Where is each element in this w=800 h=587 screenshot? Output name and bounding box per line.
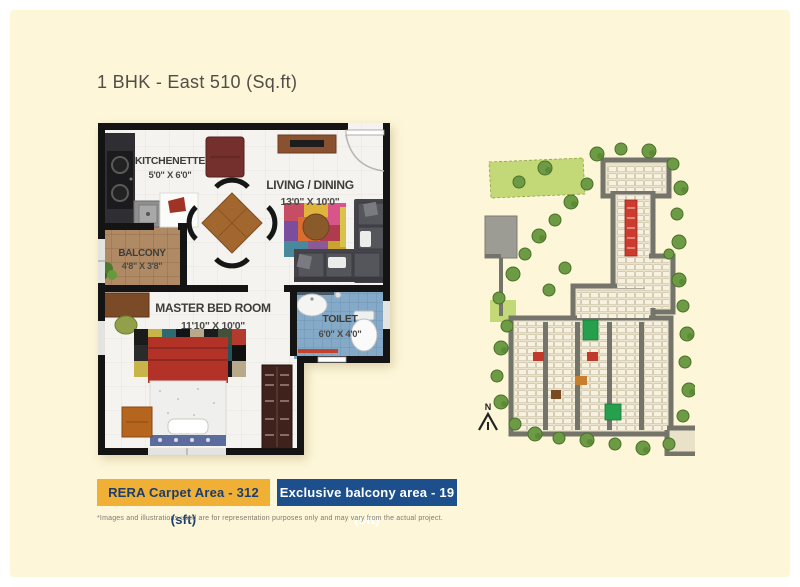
room-label-master-bedroom: MASTER BED ROOM xyxy=(155,301,271,315)
disclaimer-footnote: *Images and illustrations used are for r… xyxy=(97,515,443,522)
room-label-living-dining: LIVING / DINING xyxy=(266,178,354,192)
bath-mat xyxy=(298,349,338,353)
floor-plan: KITCHENETTE 5'0" X 6'0" LIVING / DINING … xyxy=(98,123,390,455)
brochure-panel: 1 BHK - East 510 (Sq.ft) xyxy=(10,10,790,577)
north-label: N xyxy=(485,402,492,412)
building-units xyxy=(515,165,669,430)
room-dims-living-dining: 13'0" X 10'0" xyxy=(281,196,340,208)
ottoman xyxy=(206,137,244,177)
wardrobe xyxy=(262,365,292,449)
tv-console xyxy=(278,135,336,153)
room-dims-kitchenette: 5'0" X 6'0" xyxy=(149,170,192,181)
page-title: 1 BHK - East 510 (Sq.ft) xyxy=(97,72,297,93)
room-label-balcony: BALCONY xyxy=(118,248,166,259)
room-dims-toilet: 6'0" X 4'0" xyxy=(319,329,362,340)
carpet-area-badge: RERA Carpet Area - 312 (sft) xyxy=(97,479,270,506)
bedroom-stool xyxy=(122,407,152,437)
room-dims-balcony: 4'8" X 3'8" xyxy=(122,261,163,271)
room-label-kitchenette: KITCHENETTE xyxy=(135,155,205,167)
site-plan: N xyxy=(455,138,695,456)
toilet-door xyxy=(318,357,346,362)
room-dims-master-bedroom: 11'10" X 10'0" xyxy=(181,320,245,332)
rug xyxy=(284,203,346,257)
north-arrow-icon: N xyxy=(479,402,497,430)
bed xyxy=(148,337,228,446)
room-label-toilet: TOILET xyxy=(322,313,358,325)
balcony-area-badge: Exclusive balcony area - 19 (sft) xyxy=(277,479,457,506)
